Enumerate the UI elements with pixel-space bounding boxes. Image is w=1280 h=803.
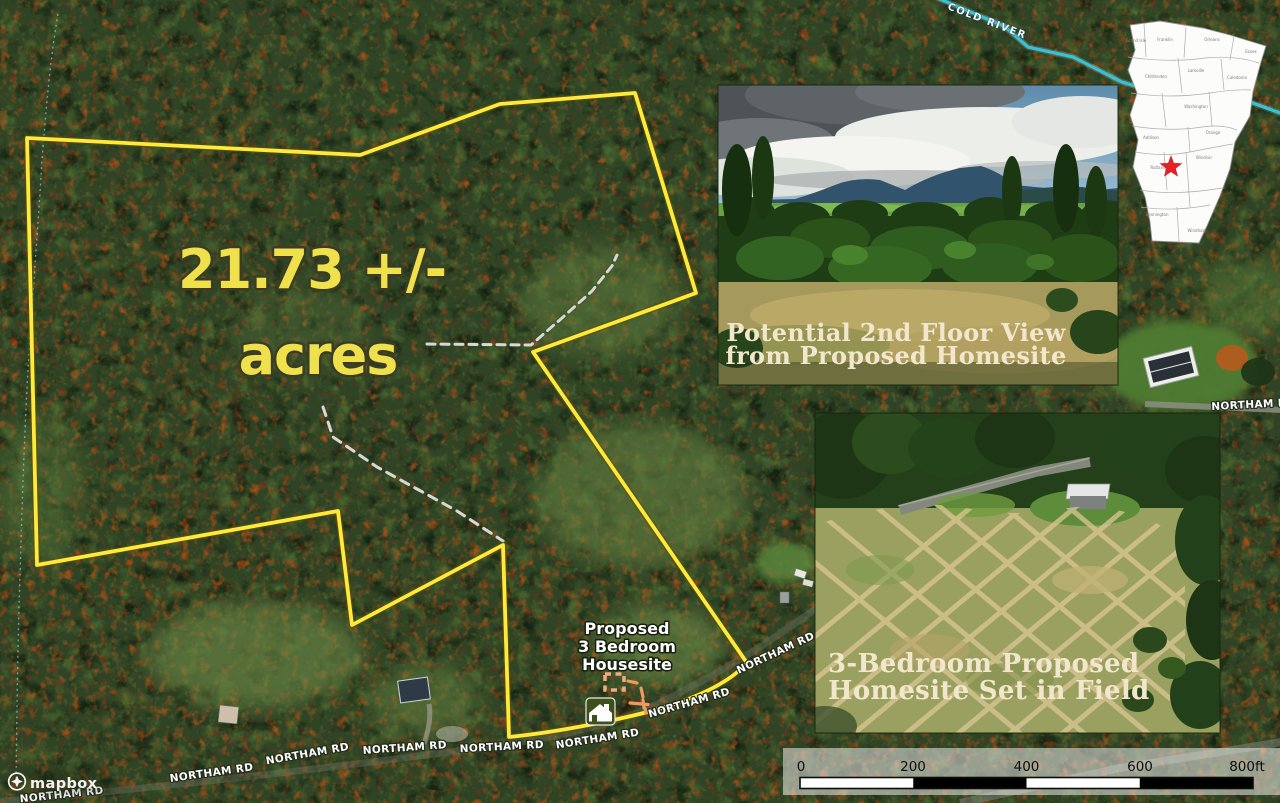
county-label: Windham	[1188, 228, 1207, 233]
county-label: Addison	[1143, 135, 1159, 140]
county-label: Washington	[1184, 104, 1208, 109]
county-label: Franklin	[1157, 37, 1173, 42]
view-photo-caption-line2: from Proposed Homesite	[725, 341, 1066, 370]
mapbox-logo[interactable]: mapbox	[2, 769, 122, 795]
scale-tick-label: 400	[1014, 759, 1040, 775]
scale-tick-label: 600	[1127, 759, 1153, 775]
county-label: Orange	[1206, 130, 1221, 135]
housesite-label: Proposed 3 Bedroom Housesite	[578, 619, 676, 674]
mapbox-wordmark: mapbox	[30, 776, 98, 792]
photo-inset-view: Potential 2nd Floor View from Proposed H…	[670, 65, 1152, 385]
shed	[1066, 484, 1110, 509]
county-label: Caledonia	[1227, 75, 1247, 80]
scale-end-label: 800ft	[1229, 759, 1265, 775]
housesite-line3: Housesite	[582, 655, 672, 674]
county-label: Chittenden	[1145, 74, 1168, 79]
house-icon	[586, 698, 615, 725]
county-label: Lamoille	[1188, 68, 1205, 73]
scale-bar: 0200400600 800ft	[783, 748, 1280, 795]
housesite-line2: 3 Bedroom	[578, 637, 676, 656]
county-label: Windsor	[1196, 155, 1213, 160]
county-label: Grand Isle	[1126, 38, 1147, 43]
scale-tick-label: 0	[797, 759, 806, 775]
county-label: Bennington	[1145, 212, 1168, 217]
acreage-line2: acres	[239, 324, 398, 387]
homesite-photo-caption-line2: Homesite Set in Field	[828, 676, 1150, 706]
homesite-photo-caption-line1: 3-Bedroom Proposed	[828, 649, 1139, 679]
property-map-image: COLD RIVER 21.73 +/- acres Propos	[0, 0, 1280, 803]
acreage-line1: 21.73 +/-	[178, 238, 446, 301]
scale-tick-label: 200	[900, 759, 926, 775]
county-label: Orleans	[1204, 37, 1219, 42]
county-label: Essex	[1245, 49, 1257, 54]
housesite-line1: Proposed	[585, 619, 670, 638]
